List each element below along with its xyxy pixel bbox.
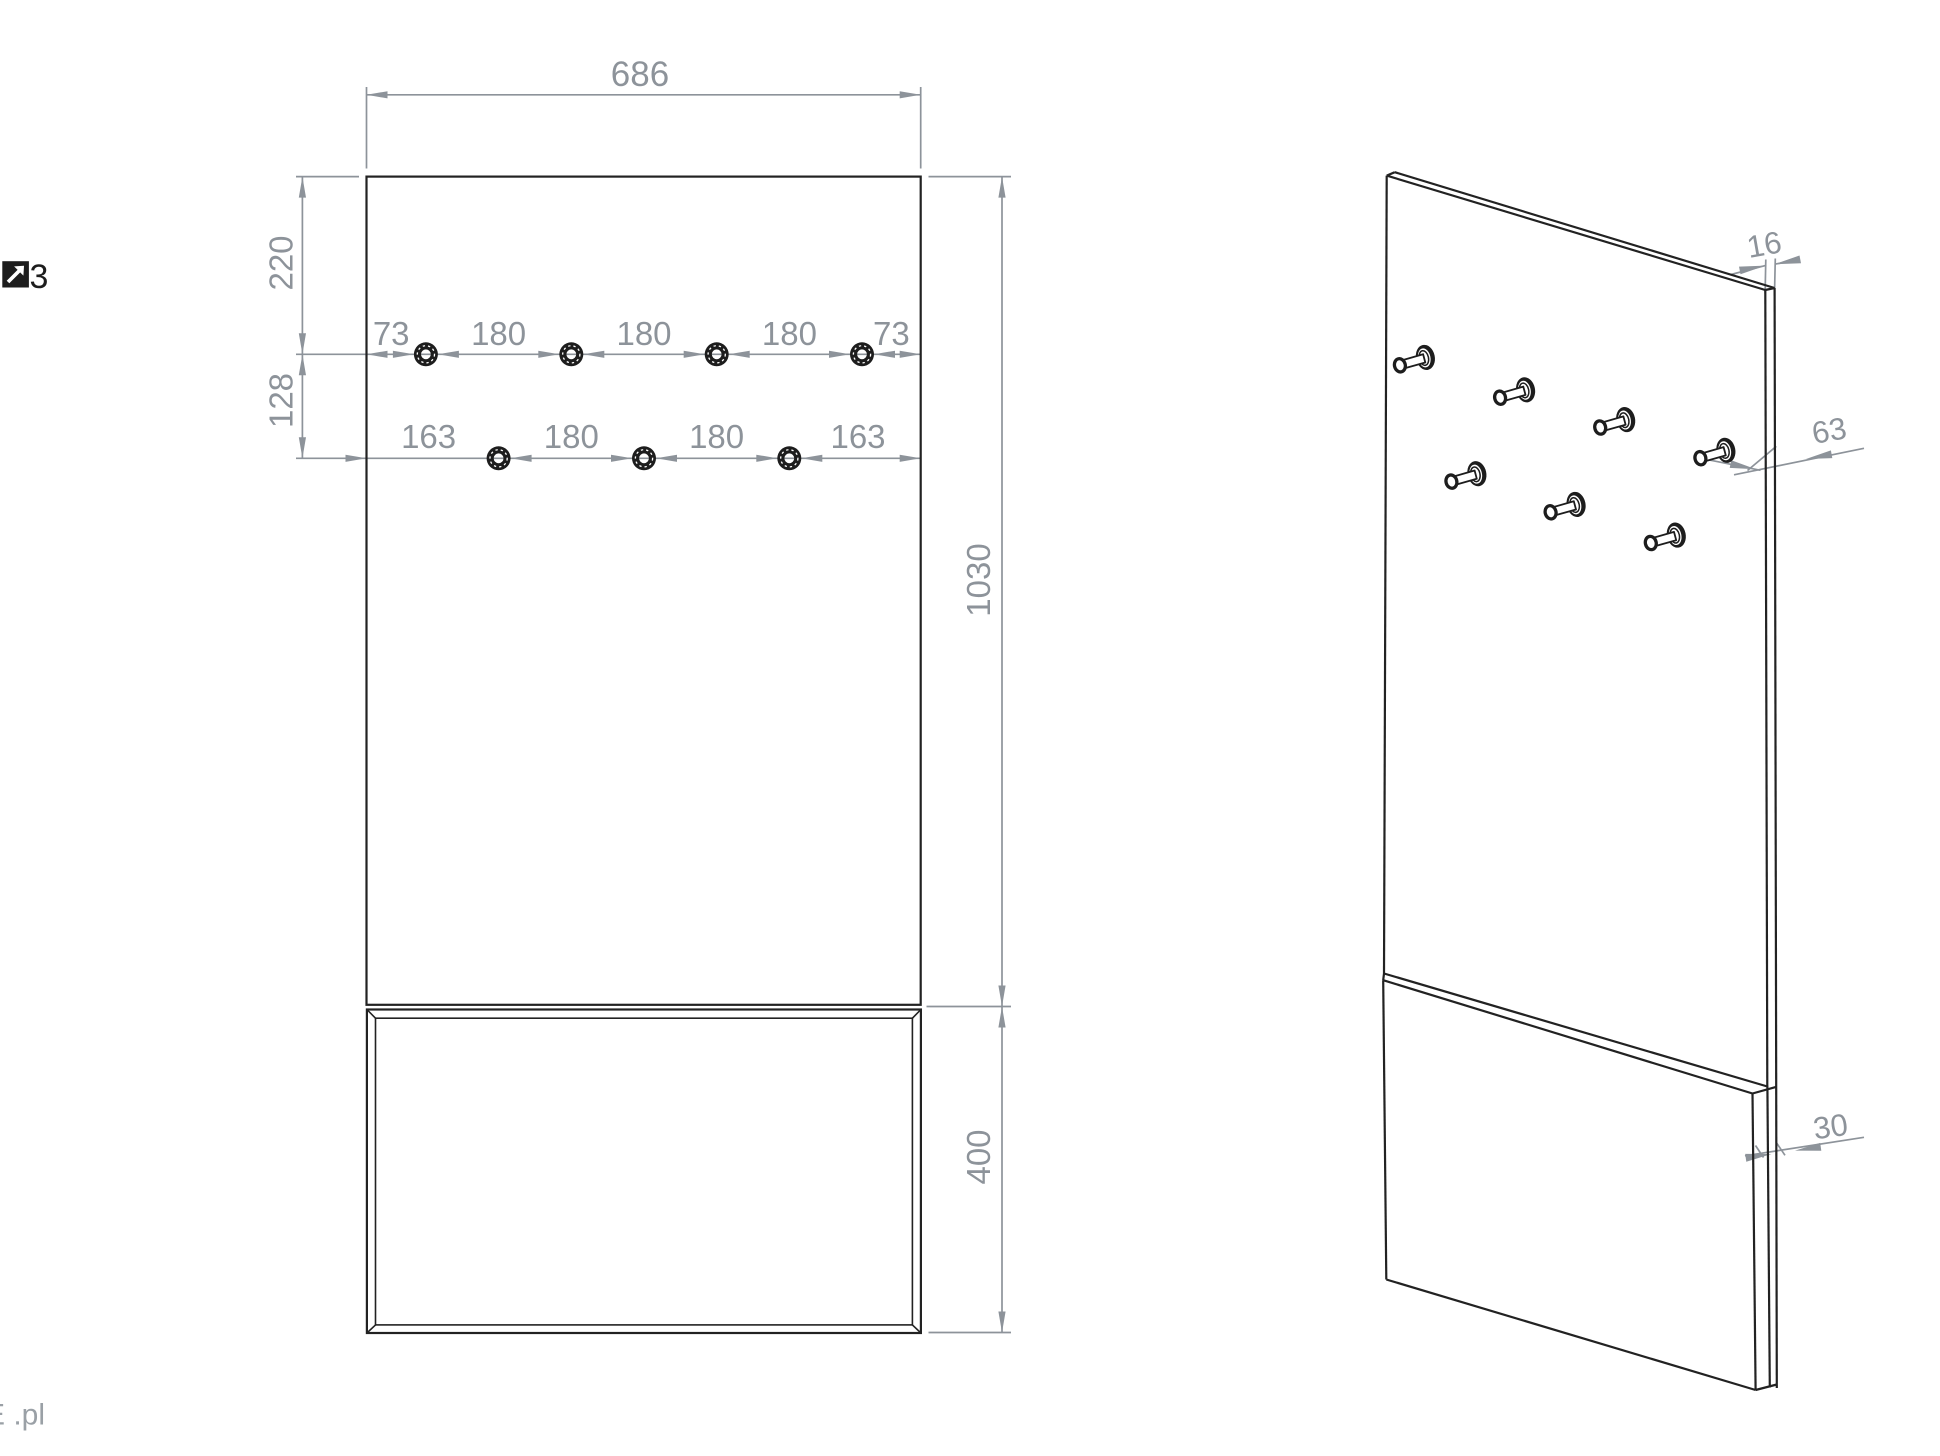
svg-text:63: 63 bbox=[1809, 410, 1849, 450]
svg-text:180: 180 bbox=[616, 315, 671, 352]
svg-text:73: 73 bbox=[873, 315, 910, 352]
svg-text:1030: 1030 bbox=[960, 543, 997, 616]
svg-text:3: 3 bbox=[30, 258, 49, 296]
svg-text:400: 400 bbox=[960, 1129, 997, 1184]
svg-text:180: 180 bbox=[689, 418, 744, 455]
svg-text:128: 128 bbox=[263, 373, 300, 428]
svg-text:16: 16 bbox=[1744, 224, 1784, 264]
svg-text:180: 180 bbox=[471, 315, 526, 352]
svg-text:163: 163 bbox=[401, 418, 456, 455]
svg-text:E .pl: E .pl bbox=[0, 1399, 45, 1432]
svg-text:73: 73 bbox=[373, 315, 410, 352]
svg-text:180: 180 bbox=[544, 418, 599, 455]
svg-text:180: 180 bbox=[762, 315, 817, 352]
svg-text:163: 163 bbox=[830, 418, 885, 455]
svg-text:220: 220 bbox=[263, 235, 300, 290]
svg-text:30: 30 bbox=[1811, 1107, 1850, 1146]
svg-text:686: 686 bbox=[611, 55, 669, 94]
